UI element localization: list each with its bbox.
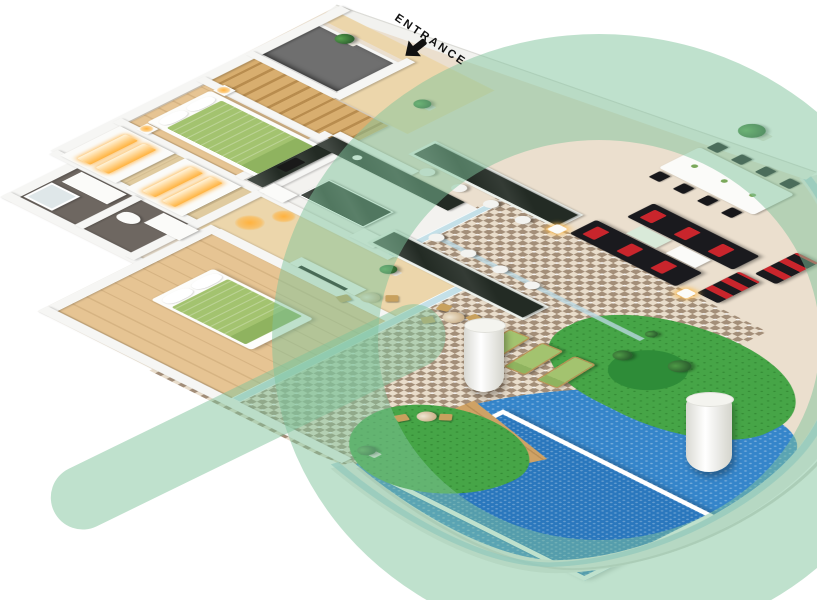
cylinder-planter [464, 320, 504, 392]
cylinder-planter [686, 394, 732, 472]
planter-top [686, 392, 734, 407]
bistro-chair [385, 295, 398, 302]
bistro-chair [439, 414, 453, 421]
planter-top [464, 318, 506, 333]
floorplan-render: ENTRANCE [0, 0, 817, 600]
isometric-floorplan [0, 0, 817, 600]
